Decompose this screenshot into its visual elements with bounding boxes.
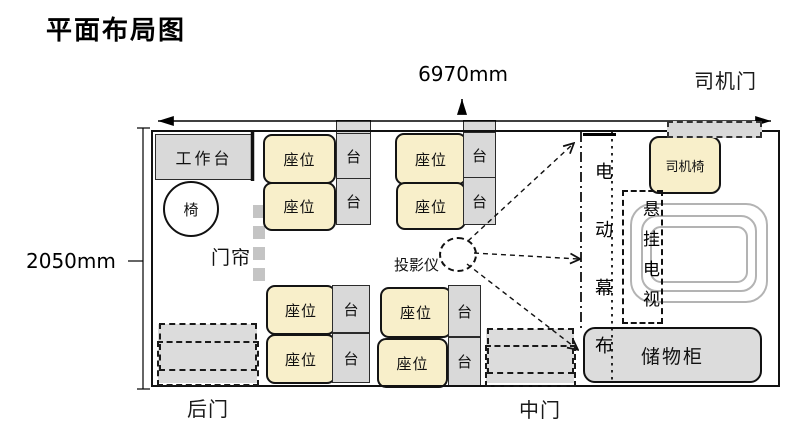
electric-screen-label: 电动幕布 <box>592 162 612 394</box>
width-dimension-label: 6970mm <box>405 62 521 86</box>
rear-door-outline <box>157 341 259 386</box>
projector <box>439 237 477 272</box>
rear-door-label: 后门 <box>187 393 229 422</box>
height-dimension-label: 2050mm <box>26 249 116 273</box>
floor-plan-canvas: 平面布局图 6970mm 司机门 2050mm 工作台 椅 门帘 座位 座位 台… <box>0 0 800 429</box>
middle-door-outline <box>485 345 576 387</box>
curtain-label: 门帘 <box>211 243 251 270</box>
driver-chair: 司机椅 <box>649 136 721 194</box>
driver-chair-label: 司机椅 <box>665 156 704 175</box>
middle-door-label: 中门 <box>519 394 561 423</box>
driver-door <box>667 121 762 138</box>
projector-label: 投影仪 <box>394 254 439 275</box>
page-title: 平面布局图 <box>46 10 186 47</box>
hanging-tv-label: 悬挂电视 <box>639 200 659 320</box>
driver-door-label: 司机门 <box>694 65 757 94</box>
